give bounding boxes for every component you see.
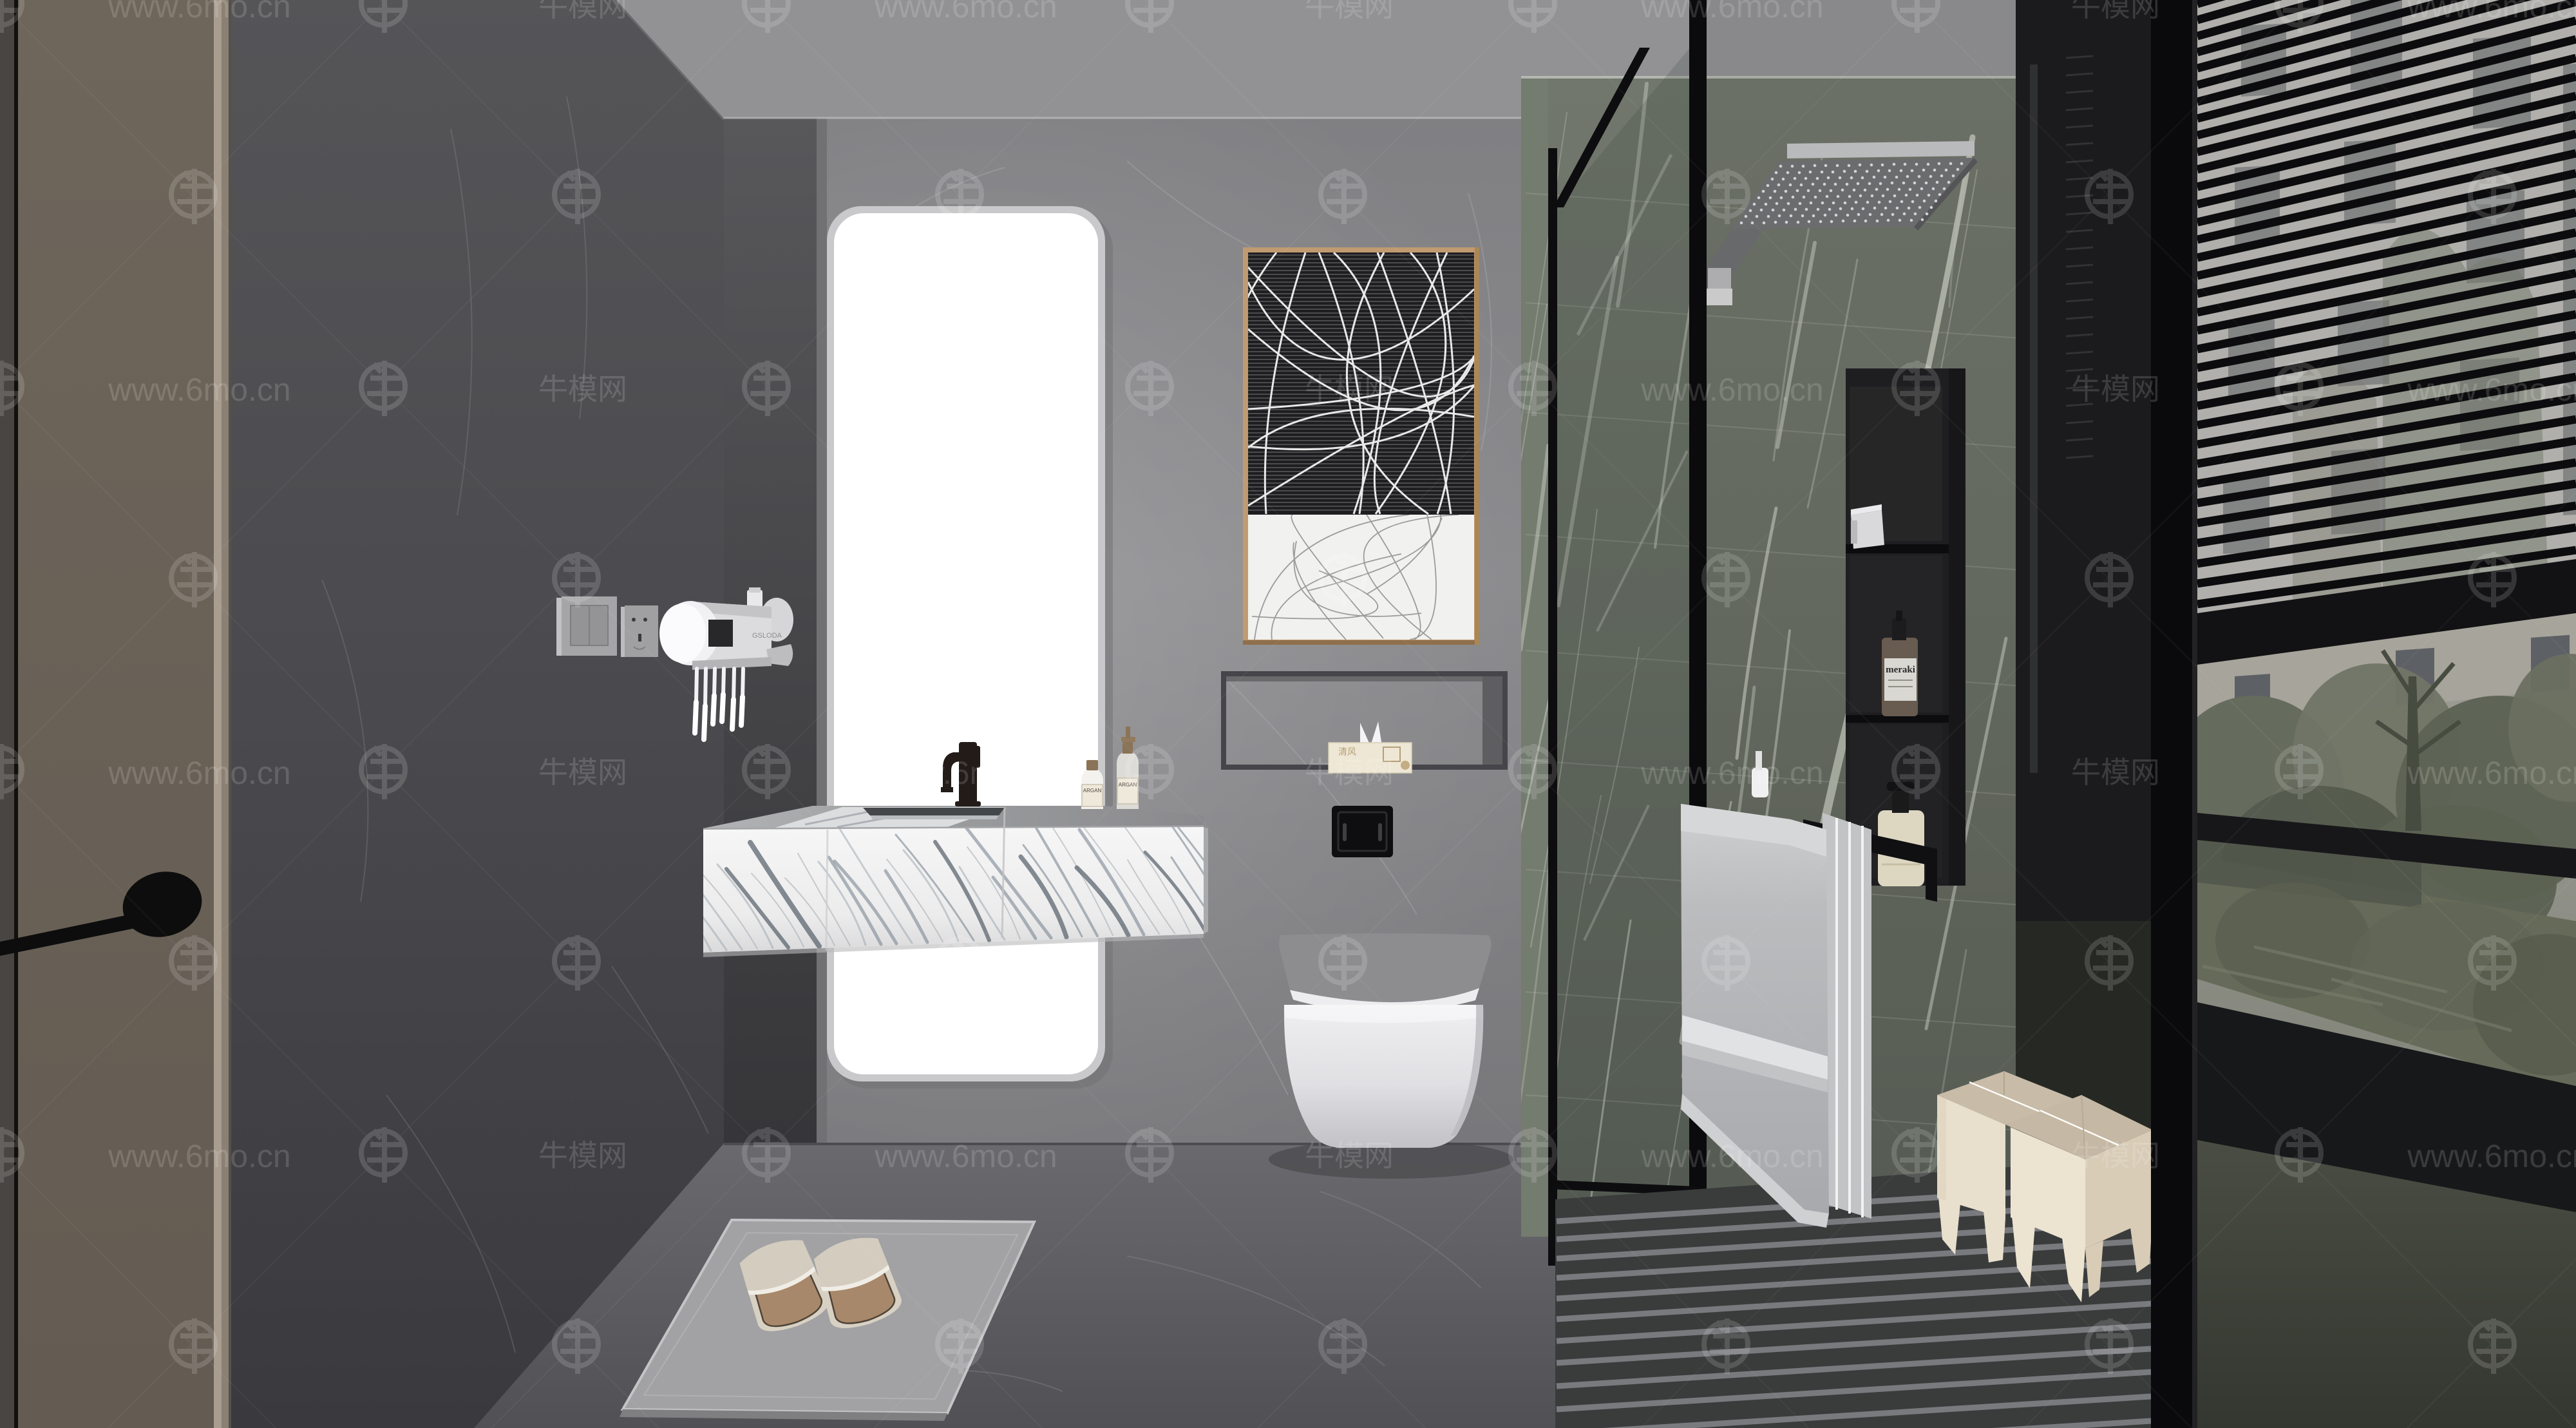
svg-text:www.6mo.cn: www.6mo.cn <box>874 1138 1057 1174</box>
svg-text:www.6mo.cn: www.6mo.cn <box>108 372 290 408</box>
svg-text:牛模网: 牛模网 <box>538 1139 627 1172</box>
svg-text:www.6mo.cn: www.6mo.cn <box>2407 1138 2576 1174</box>
svg-text:牛模网: 牛模网 <box>2071 756 2160 789</box>
svg-text:www.6mo.cn: www.6mo.cn <box>874 0 1057 24</box>
svg-text:www.6mo.cn: www.6mo.cn <box>2407 755 2576 791</box>
svg-text:www.6mo.cn: www.6mo.cn <box>1640 1138 1823 1174</box>
svg-text:www.6mo.cn: www.6mo.cn <box>108 0 290 24</box>
svg-text:牛模网: 牛模网 <box>538 0 627 23</box>
svg-text:www.6mo.cn: www.6mo.cn <box>1640 0 1823 24</box>
svg-text:www.6mo.cn: www.6mo.cn <box>1640 372 1823 408</box>
svg-text:牛模网: 牛模网 <box>2071 1139 2160 1172</box>
svg-text:牛模网: 牛模网 <box>538 756 627 789</box>
svg-text:GSLODA: GSLODA <box>752 632 782 640</box>
svg-text:牛模网: 牛模网 <box>2071 372 2160 406</box>
svg-text:www.6mo.cn: www.6mo.cn <box>108 755 290 791</box>
svg-text:牛模网: 牛模网 <box>1305 756 1394 789</box>
svg-text:www.6mo.cn: www.6mo.cn <box>874 755 1057 791</box>
svg-text:牛模网: 牛模网 <box>1305 1139 1394 1172</box>
svg-text:ARGAN: ARGAN <box>1083 788 1102 794</box>
svg-text:www.6mo.cn: www.6mo.cn <box>2407 0 2576 24</box>
svg-text:www.6mo.cn: www.6mo.cn <box>108 1138 290 1174</box>
svg-text:牛模网: 牛模网 <box>1305 0 1394 23</box>
svg-text:牛模网: 牛模网 <box>2071 0 2160 23</box>
svg-text:www.6mo.cn: www.6mo.cn <box>874 372 1057 408</box>
svg-text:牛模网: 牛模网 <box>1305 372 1394 406</box>
svg-text:牛模网: 牛模网 <box>538 372 627 406</box>
svg-text:www.6mo.cn: www.6mo.cn <box>1640 755 1823 791</box>
svg-text:www.6mo.cn: www.6mo.cn <box>2407 372 2576 408</box>
